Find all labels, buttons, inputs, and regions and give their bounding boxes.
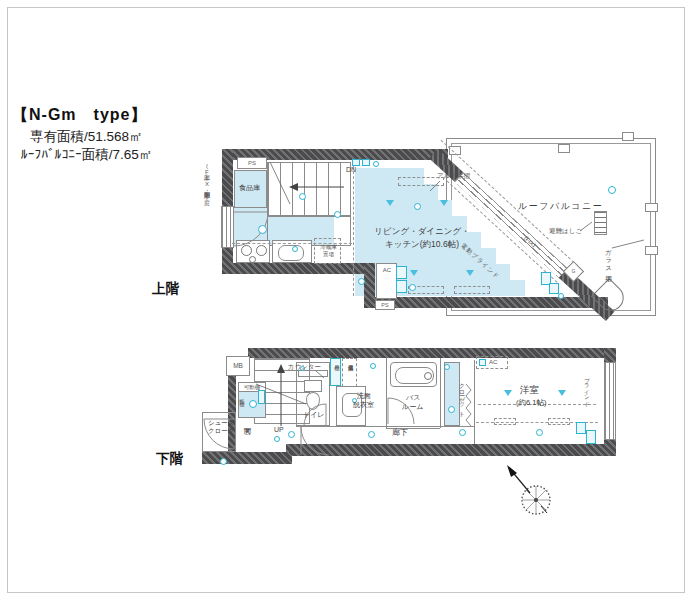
- light-icon: [258, 225, 267, 234]
- washroom-label: 脱衣室: [353, 401, 374, 409]
- light-icon: [220, 458, 227, 465]
- fixture-icon: [396, 266, 407, 279]
- light-icon: [358, 278, 365, 285]
- light-icon: [274, 436, 280, 442]
- counter-leader: [316, 371, 324, 378]
- light-icon: [459, 429, 466, 436]
- counter-label: カウンター: [288, 363, 321, 370]
- light-icon: [409, 284, 416, 291]
- stair-break-line: [270, 162, 290, 204]
- vector-overlay: [0, 0, 692, 600]
- bedroom-label: 洋室: [520, 385, 539, 396]
- washroom-label: 洗面: [357, 392, 371, 400]
- downlight-icon: [410, 270, 418, 276]
- accordion-door: [466, 384, 471, 426]
- faucet-icon: [292, 246, 298, 252]
- blind-label: ブラインド: [584, 373, 590, 411]
- glass-rail-label: ガラス手摺: [605, 244, 612, 296]
- light-icon: [334, 211, 341, 218]
- light-icon: [448, 406, 455, 413]
- pantry-label: 食品庫: [239, 184, 260, 192]
- downlight-icon: [558, 390, 566, 396]
- toilet-label: トイレ: [303, 411, 325, 419]
- rail-leader: [430, 181, 440, 191]
- fixture-icon: [549, 283, 559, 294]
- light-icon: [370, 363, 376, 369]
- ldk-label: リビング・ダイニング・: [356, 227, 488, 237]
- dn-label: DN: [346, 166, 356, 174]
- roof-balcony-label: ルーフバルコニー: [518, 201, 603, 211]
- bedroom-size-label: (約6.1帖): [516, 399, 546, 408]
- light-icon: [558, 293, 564, 299]
- light-icon: [444, 364, 450, 370]
- downlight-icon: [466, 270, 474, 276]
- downlight-icon: [440, 200, 448, 206]
- window-note-label: (上部FIX・下部内倒し窓): [203, 163, 210, 285]
- compass-icon: [507, 465, 550, 514]
- fixture-icon: [396, 280, 407, 293]
- closet-label: クローゼット: [458, 379, 465, 429]
- light-icon: [299, 193, 306, 200]
- floor-plan-canvas: 【N-Gm type】 専有面積/51.568㎡ ﾙｰﾌﾊﾞﾙｺﾆｰ面積/7.6…: [0, 0, 692, 600]
- downlight-icon: [504, 390, 512, 396]
- rail-leader: [612, 240, 644, 248]
- light-icon: [368, 431, 375, 438]
- fixture-icon: [362, 159, 370, 166]
- light-icon: [536, 429, 543, 436]
- shoe-closet-label: クローク: [208, 427, 234, 434]
- light-icon: [373, 161, 379, 167]
- light-icon: [414, 203, 421, 210]
- downlight-icon: [386, 200, 394, 206]
- fixture-icon: [352, 159, 360, 166]
- hallway-label: 廊下: [392, 428, 408, 437]
- dn-arrow: [289, 183, 344, 191]
- bathroom-label: ルーム: [402, 403, 423, 411]
- light-icon: [288, 431, 295, 438]
- door-arc: [301, 427, 329, 455]
- escape-ladder-label: 避難はしご: [549, 227, 582, 234]
- light-icon: [608, 186, 616, 194]
- bathroom-label: バス: [406, 394, 420, 402]
- aluminum-rail-label: アルミ手摺: [437, 172, 470, 179]
- entrance-label: 玄関: [243, 422, 251, 448]
- up-label: UP: [274, 426, 284, 434]
- shoe-closet-label: シューズ: [208, 419, 234, 426]
